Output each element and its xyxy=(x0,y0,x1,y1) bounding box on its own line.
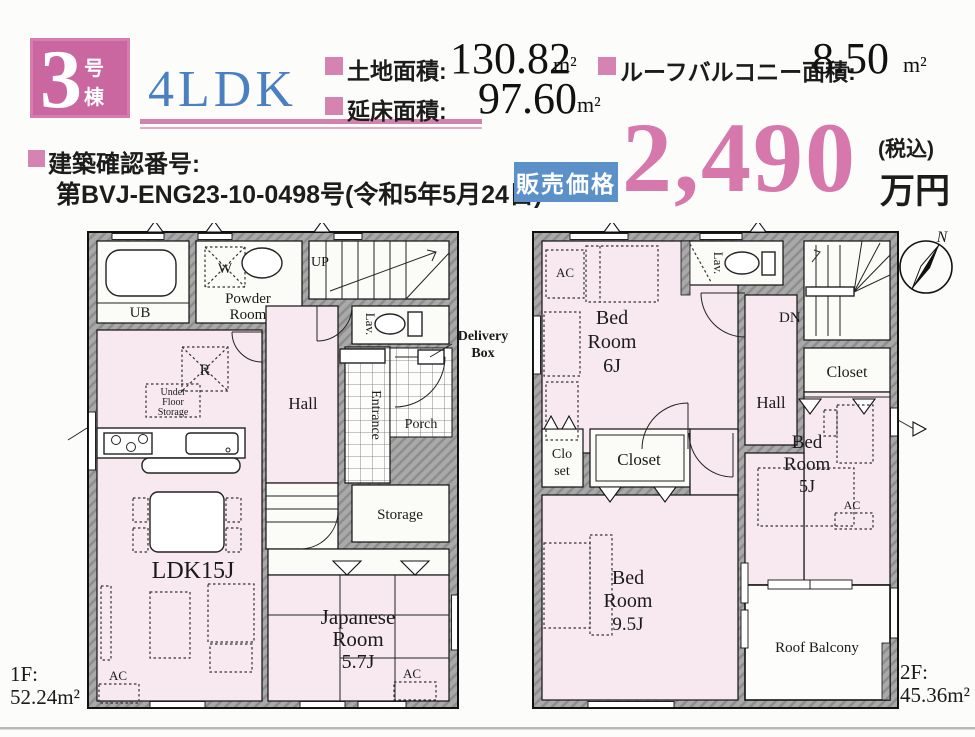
confirmation-label: 建築確認番号: xyxy=(48,144,200,179)
label-dn: DN xyxy=(779,310,801,326)
label-ac-jp: AC xyxy=(403,666,421,681)
label-powder-1: Powder xyxy=(225,291,271,307)
label-lav-2f: Lav. xyxy=(711,252,726,275)
label-delivery-1: Delivery xyxy=(458,329,509,344)
label-roof-balcony: Roof Balcony xyxy=(775,640,859,656)
label-up: UP xyxy=(311,255,329,270)
price-value: 2,490 xyxy=(622,108,857,208)
bed5-window-flag-icon xyxy=(891,408,927,436)
land-area-bullet-icon xyxy=(325,57,343,75)
label-jp-2: Room xyxy=(332,627,383,651)
floor1-area: 52.24m² xyxy=(10,685,80,709)
floor-area-value: 97.60 xyxy=(478,73,577,124)
label-bed6-3: 6J xyxy=(603,355,621,377)
wall-lav-left xyxy=(681,241,690,295)
label-ac-bed6: AC xyxy=(556,265,574,280)
confirmation-bullet-icon xyxy=(28,150,45,167)
unit-number: 3 xyxy=(30,42,82,118)
floor2-plan: AC Bed Room 6J Lav. DN Hall Closet Bed R… xyxy=(533,223,970,708)
label-bed6-1: Bed xyxy=(596,307,628,329)
land-area-label: 土地面積: xyxy=(347,52,447,86)
floor-area-label: 延床面積: xyxy=(347,92,447,126)
room-understairs xyxy=(266,483,338,549)
flyer-page: 3 号棟 4LDK 土地面積: 130.82 m² ルーフバルコニー面積: 8.… xyxy=(0,0,975,737)
label-washer: W xyxy=(218,261,233,277)
label-jp-1: Japanese xyxy=(321,605,396,629)
label-powder-2: Room xyxy=(230,307,267,323)
label-closet-small-1: Clo xyxy=(552,447,572,462)
unit-suffix: 号棟 xyxy=(82,52,130,118)
floor1-label: 1F: xyxy=(10,662,38,686)
room-bed5-main xyxy=(804,392,890,585)
floor-area-unit: m² xyxy=(577,92,601,118)
room-stairs-1f xyxy=(309,241,449,299)
label-jp-3: 5.7J xyxy=(342,651,375,673)
label-bed5-2: Room xyxy=(784,454,831,475)
roof-balcony-unit: m² xyxy=(903,52,927,78)
toilet-1f-icon xyxy=(375,312,422,336)
label-ufs-3: Storage xyxy=(158,407,189,418)
floor2-area: 45.36m² xyxy=(900,683,970,707)
label-bed6-2: Room xyxy=(588,331,637,353)
label-ac-ldk: AC xyxy=(109,668,127,683)
price-badge: 販売価格 xyxy=(514,162,618,202)
label-closet-small-2: set xyxy=(554,464,570,479)
label-ub: UB xyxy=(130,305,151,321)
label-closet-mid: Closet xyxy=(617,450,661,469)
label-entrance: Entrance xyxy=(368,390,383,440)
label-bed95-2: Room xyxy=(604,590,653,612)
price-tax-note: (税込) xyxy=(878,133,934,163)
bottom-divider xyxy=(0,727,975,730)
label-lav-1f: Lav. xyxy=(363,313,378,336)
label-bed5-3: 5J xyxy=(799,476,815,496)
label-bed95-3: 9.5J xyxy=(612,614,643,635)
price-unit: 万円 xyxy=(880,163,950,214)
label-hall-2f: Hall xyxy=(756,393,786,412)
powder-sink-icon xyxy=(242,248,282,278)
roof-balcony-bullet-icon xyxy=(598,57,616,75)
floor-plan-canvas: UB W Powder Room UP Lav. Delivery Box Ha… xyxy=(0,223,975,737)
compass-icon: N xyxy=(900,229,952,293)
roof-vent-icons-1f xyxy=(147,223,330,232)
passage-bed95 xyxy=(690,429,738,495)
unit-badge: 3 号棟 xyxy=(30,38,130,118)
label-ldk: LDK15J xyxy=(152,558,235,584)
label-fridge: R xyxy=(200,362,211,379)
label-hall-1f: Hall xyxy=(288,394,318,413)
label-bed95-1: Bed xyxy=(612,567,644,589)
floor1-plan: UB W Powder Room UP Lav. Delivery Box Ha… xyxy=(10,223,508,709)
floor-area-bullet-icon xyxy=(325,97,343,115)
confirmation-value: 第BVJ-ENG23-10-0498号(令和5年5月24日) xyxy=(56,175,542,211)
label-bed5-1: Bed xyxy=(792,432,823,453)
layout-type: 4LDK xyxy=(148,60,297,119)
label-closet-right: Closet xyxy=(827,364,868,381)
roof-vent-icons-2f xyxy=(604,223,766,232)
label-storage: Storage xyxy=(377,507,423,523)
compass-north-label: N xyxy=(936,229,949,246)
label-delivery-2: Box xyxy=(471,346,494,361)
label-porch: Porch xyxy=(405,417,438,432)
roof-balcony-value: 8.50 xyxy=(812,33,889,84)
shoe-cabinet-icon xyxy=(340,349,385,363)
label-ac-bed5: AC xyxy=(844,498,861,512)
title-underline-thin xyxy=(140,127,482,129)
floor2-label: 2F: xyxy=(900,660,928,684)
